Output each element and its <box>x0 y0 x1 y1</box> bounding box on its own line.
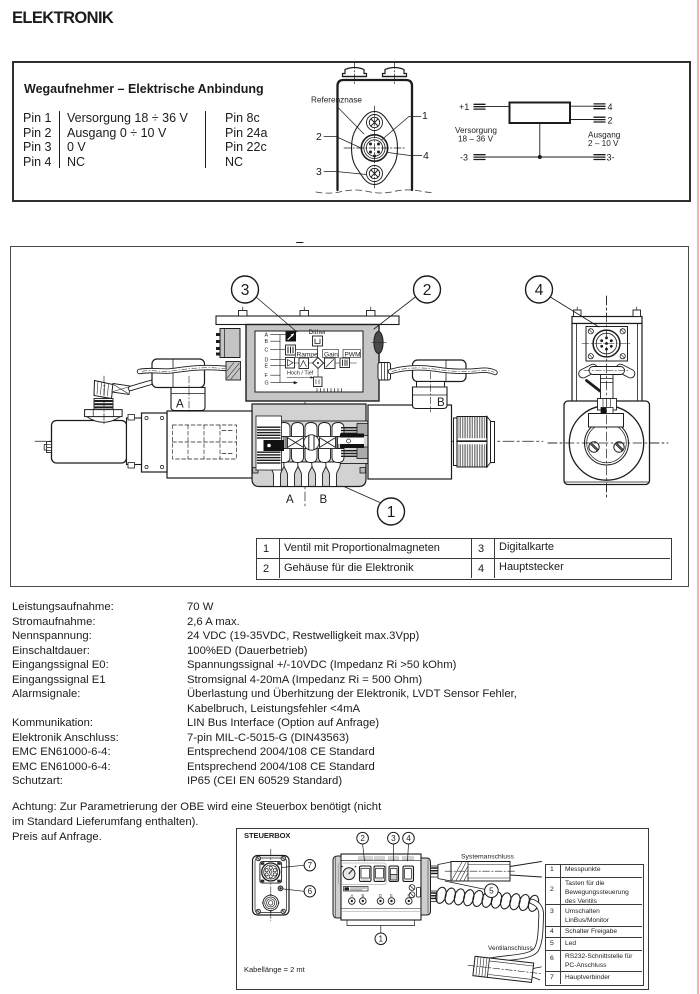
svg-text:3: 3 <box>316 166 322 178</box>
svg-text:+1: +1 <box>459 102 469 112</box>
svg-text:Referenznase: Referenznase <box>311 96 362 105</box>
svg-text:PWM: PWM <box>345 351 361 358</box>
svg-text:5: 5 <box>489 887 494 896</box>
svg-text:B: B <box>320 494 328 506</box>
svg-text:3-: 3- <box>607 153 615 163</box>
svg-text:Ventilanschluss: Ventilanschluss <box>488 945 534 952</box>
svg-text:Dither: Dither <box>309 329 327 336</box>
svg-text:B: B <box>437 397 445 409</box>
svg-text:1: 1 <box>379 935 384 944</box>
svg-text:6: 6 <box>308 887 313 896</box>
svg-text:4: 4 <box>406 834 411 843</box>
svg-text:2: 2 <box>423 282 432 299</box>
svg-text:4: 4 <box>535 282 544 299</box>
svg-text:-3: -3 <box>460 153 468 163</box>
svg-text:F: F <box>408 893 411 898</box>
svg-text:E: E <box>265 364 269 370</box>
svg-text:Rampe: Rampe <box>297 351 319 358</box>
svg-text:4: 4 <box>608 102 613 112</box>
svg-text:D: D <box>379 893 382 898</box>
svg-text:3: 3 <box>391 834 396 843</box>
svg-text:3: 3 <box>241 282 250 299</box>
svg-text:2 – 10 V: 2 – 10 V <box>588 139 619 148</box>
svg-text:18 – 36 V: 18 – 36 V <box>458 134 494 143</box>
svg-text:E: E <box>390 893 393 898</box>
svg-text:Systemanschluss: Systemanschluss <box>461 854 514 861</box>
svg-text:7: 7 <box>308 861 313 870</box>
svg-text:2: 2 <box>608 115 613 125</box>
svg-text:Gain: Gain <box>324 351 338 358</box>
svg-text:A: A <box>176 399 184 411</box>
svg-text:A: A <box>351 893 354 898</box>
svg-text:2: 2 <box>360 834 365 843</box>
svg-text:A: A <box>286 494 294 506</box>
svg-text:1: 1 <box>422 110 428 122</box>
svg-text:1: 1 <box>387 504 396 521</box>
svg-text:A: A <box>265 333 269 339</box>
svg-text:G: G <box>265 381 269 387</box>
svg-text:B: B <box>265 339 269 345</box>
svg-text:B: B <box>362 893 365 898</box>
svg-text:4: 4 <box>423 150 429 162</box>
svg-text:C: C <box>265 348 269 354</box>
svg-text:Hoch / Tief: Hoch / Tief <box>287 371 314 377</box>
svg-text:2: 2 <box>316 131 322 143</box>
